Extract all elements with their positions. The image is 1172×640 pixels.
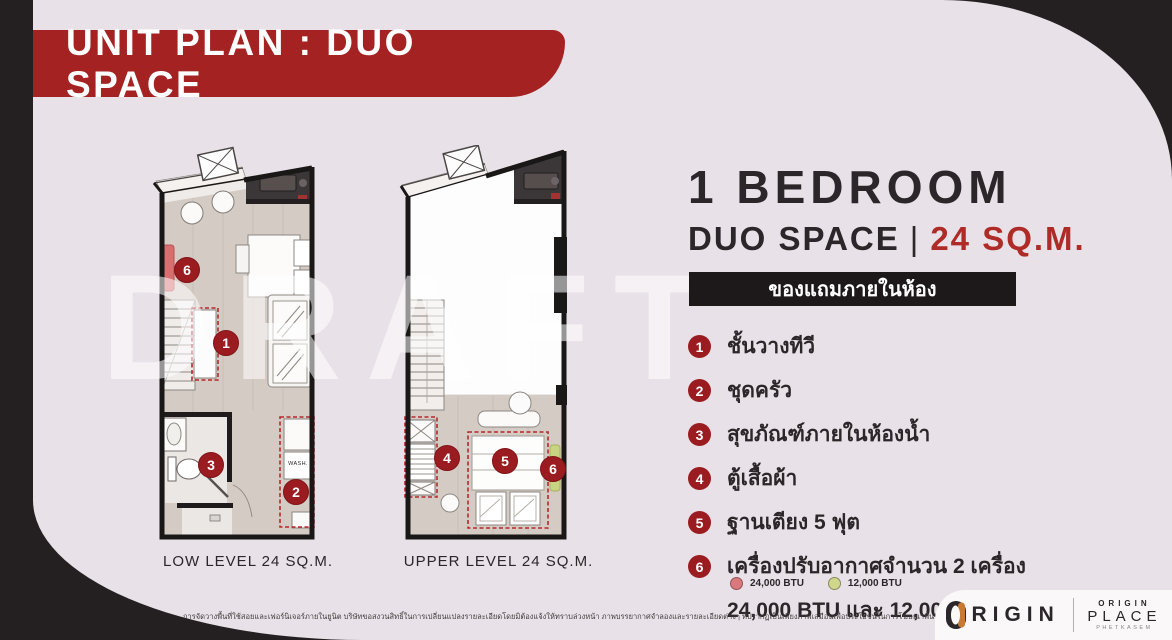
- origin-o-icon: [945, 600, 967, 630]
- freebies-header-bar: ของแถมภายในห้อง: [689, 272, 1016, 306]
- legend-entry: 24,000 BTU: [730, 577, 804, 590]
- round-stool: [212, 191, 234, 213]
- upper-level-caption: UPPER LEVEL 24 SQ.M.: [391, 553, 606, 570]
- interior-wall: [177, 503, 233, 508]
- item-text: สุขภัณฑ์ภายในห้องน้ำ: [727, 418, 930, 451]
- legend-label: 24,000 BTU: [750, 578, 804, 589]
- marker-3: 3: [199, 453, 224, 478]
- dining-chair: [294, 270, 310, 296]
- brand-divider: [1073, 598, 1075, 632]
- svg-text:6: 6: [183, 262, 191, 278]
- tv-shelf: [194, 310, 216, 378]
- marker-6: 6: [175, 258, 200, 283]
- item-number-badge: 2: [688, 379, 711, 402]
- ledge-detail: [551, 193, 560, 200]
- svg-text:1: 1: [222, 335, 230, 351]
- stairs: [410, 300, 444, 410]
- toilet: [168, 457, 201, 481]
- sink-basin: [167, 423, 181, 445]
- item-number-badge: 1: [688, 335, 711, 358]
- dining-chair: [294, 240, 310, 266]
- freebies-header-text: ของแถมภายในห้อง: [768, 273, 936, 305]
- origin-place-logo: ORIGIN PLACE PHETKASEM: [1087, 599, 1161, 632]
- legend-dot-green: [828, 577, 841, 590]
- svg-text:6: 6: [549, 461, 557, 477]
- item-number-badge: 5: [688, 511, 711, 534]
- place-line3: PHETKASEM: [1087, 625, 1161, 631]
- svg-text:2: 2: [292, 484, 300, 500]
- item-number-badge: 4: [688, 467, 711, 490]
- item-number-badge: 6: [688, 555, 711, 578]
- item-text: ฐานเตียง 5 ฟุต: [727, 506, 860, 539]
- slide: UNIT PLAN : DUO SPACE: [0, 0, 1172, 640]
- title-banner: UNIT PLAN : DUO SPACE: [33, 30, 565, 97]
- side-table: [509, 392, 531, 414]
- marker-5: 5: [493, 449, 518, 474]
- dining-table: [248, 235, 300, 297]
- marker-1: 1: [214, 331, 239, 356]
- page-title: UNIT PLAN : DUO SPACE: [66, 22, 565, 106]
- list-item: 3 สุขภัณฑ์ภายในห้องน้ำ: [688, 418, 1026, 451]
- origin-logo: RIGIN: [945, 600, 1059, 630]
- interior-wall: [227, 412, 232, 482]
- condenser-fan: [299, 179, 307, 187]
- list-item: 1 ชั้นวางทีวี: [688, 330, 1026, 363]
- place-line2: PLACE: [1087, 608, 1161, 625]
- ledge-wall: [246, 199, 312, 204]
- item-text: ชั้นวางทีวี: [727, 330, 815, 363]
- upper-level-floor-plan: 4 5 6: [398, 145, 613, 547]
- subtitle-divider: |: [900, 220, 931, 257]
- place-line1: ORIGIN: [1087, 599, 1161, 608]
- list-item: 2 ชุดครัว: [688, 374, 1026, 407]
- list-item: 4 ตู้เสื้อผ้า: [688, 462, 1026, 495]
- floor-drain: [210, 515, 220, 521]
- condenser-fan: [551, 177, 559, 185]
- marker-6: 6: [541, 457, 566, 482]
- low-level-floor-plan: WASH. 6 1 3: [148, 145, 350, 547]
- brand-card: RIGIN ORIGIN PLACE PHETKASEM: [935, 590, 1172, 640]
- svg-text:4: 4: [443, 450, 451, 466]
- interior-wall: [162, 412, 228, 417]
- round-stool: [441, 494, 459, 512]
- list-item: 5 ฐานเตียง 5 ฟุต: [688, 506, 1026, 539]
- ledge-wall: [514, 199, 564, 204]
- unit-subtitle-name: DUO SPACE: [688, 220, 900, 257]
- shower-floor: [182, 508, 232, 535]
- origin-wordmark: RIGIN: [971, 603, 1059, 627]
- legend-entry: 12,000 BTU: [828, 577, 902, 590]
- wall-pillar: [556, 385, 567, 405]
- round-stool: [181, 202, 203, 224]
- unit-type-title: 1 BEDROOM: [688, 160, 1012, 214]
- item-text: ตู้เสื้อผ้า: [727, 462, 797, 495]
- legend-dot-red: [730, 577, 743, 590]
- wall-pillar: [554, 237, 567, 313]
- unit-subtitle: DUO SPACE|24 SQ.M.: [688, 220, 1086, 258]
- item-text: ชุดครัว: [727, 374, 792, 407]
- btu-legend: 24,000 BTU 12,000 BTU: [730, 577, 902, 590]
- svg-text:3: 3: [207, 457, 215, 473]
- marker-2: 2: [284, 480, 309, 505]
- wash-label: WASH.: [288, 461, 308, 467]
- marker-4: 4: [435, 446, 460, 471]
- item-number-badge: 3: [688, 423, 711, 446]
- low-level-caption: LOW LEVEL 24 SQ.M.: [147, 553, 349, 570]
- bench: [478, 411, 540, 427]
- unit-area: 24 SQ.M.: [930, 220, 1085, 257]
- dining-chair: [236, 245, 249, 273]
- page-background: UNIT PLAN : DUO SPACE: [33, 0, 1172, 640]
- stairs: [162, 300, 195, 390]
- svg-text:5: 5: [501, 453, 509, 469]
- sofa: [268, 295, 312, 387]
- disclaimer-text: การจัดวางพื้นที่ใช้สอยและเฟอร์นิเจอร์ภาย…: [183, 611, 941, 623]
- legend-label: 12,000 BTU: [848, 578, 902, 589]
- ac-unit-red: [163, 245, 174, 291]
- wardrobe: [407, 420, 435, 495]
